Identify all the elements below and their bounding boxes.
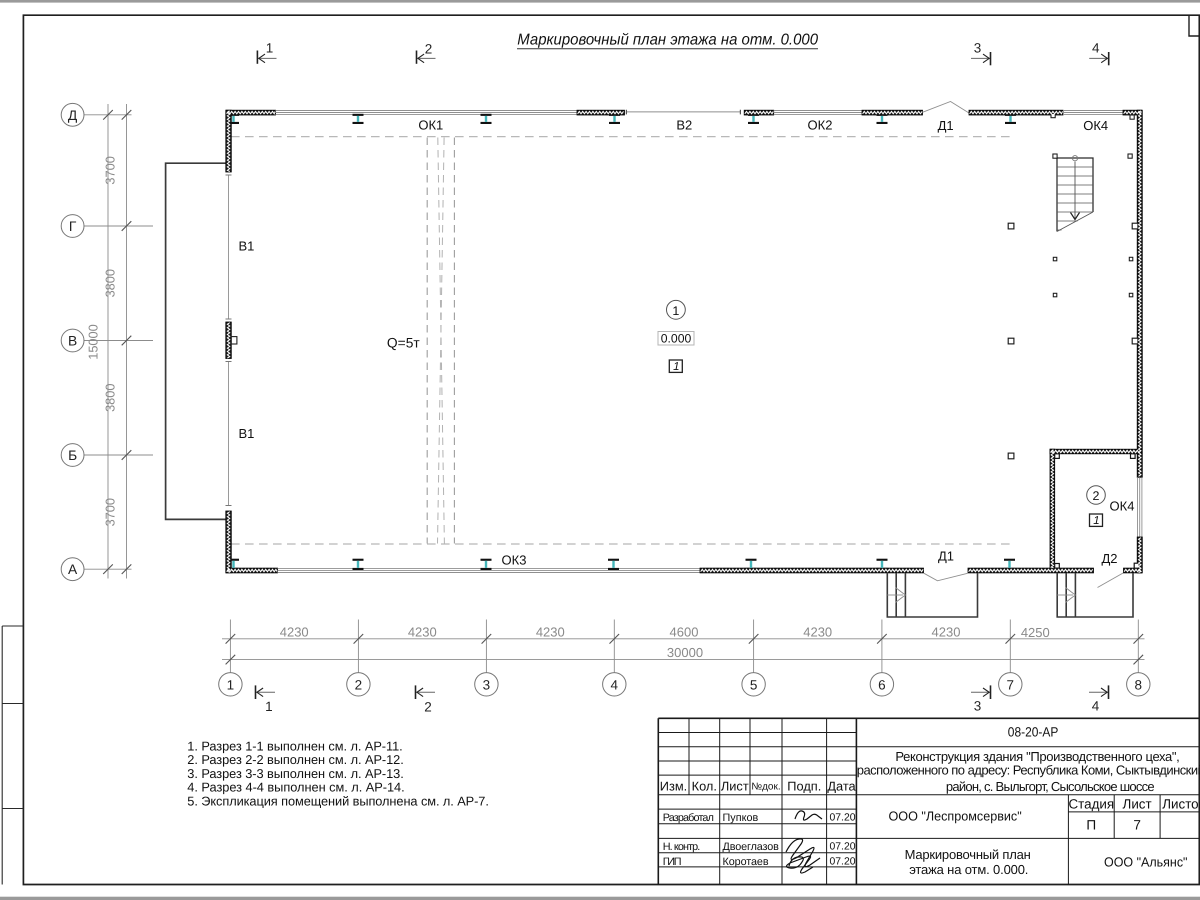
- svg-text:1: 1: [227, 677, 235, 692]
- svg-text:3: 3: [483, 677, 491, 692]
- svg-text:Маркировочный план этажа на от: Маркировочный план этажа на отм. 0.000: [517, 32, 818, 49]
- svg-text:Лист: Лист: [1123, 797, 1152, 812]
- svg-text:7: 7: [1133, 818, 1141, 833]
- svg-text:ОК2: ОК2: [808, 117, 833, 132]
- svg-text:Дата: Дата: [827, 778, 856, 793]
- svg-text:7: 7: [1007, 677, 1015, 692]
- svg-text:4230: 4230: [803, 624, 832, 639]
- svg-text:В: В: [68, 334, 77, 349]
- svg-text:Q=5т: Q=5т: [387, 336, 420, 351]
- svg-text:ОК3: ОК3: [502, 553, 527, 568]
- svg-text:2: 2: [425, 42, 433, 57]
- svg-text:2: 2: [355, 677, 363, 692]
- svg-text:5. Экспликация помещений выпол: 5. Экспликация помещений выполнена см. л…: [187, 793, 489, 808]
- svg-text:3: 3: [974, 41, 982, 56]
- svg-text:ООО "Леспромсервис": ООО "Леспромсервис": [889, 809, 1023, 824]
- svg-text:1: 1: [265, 699, 273, 714]
- svg-text:Лист: Лист: [721, 778, 749, 793]
- svg-text:3800: 3800: [103, 269, 118, 297]
- svg-text:ОК4: ОК4: [1110, 499, 1135, 514]
- svg-text:4: 4: [1092, 699, 1100, 714]
- svg-text:Стадия: Стадия: [1068, 797, 1114, 812]
- svg-text:№док.: №док.: [751, 781, 780, 792]
- svg-text:4230: 4230: [280, 624, 309, 639]
- svg-text:6: 6: [878, 677, 886, 692]
- svg-text:4: 4: [611, 677, 619, 692]
- svg-text:Д1: Д1: [938, 118, 954, 133]
- svg-text:4230: 4230: [536, 624, 565, 639]
- svg-text:Коротаев: Коротаев: [723, 856, 769, 868]
- svg-text:П: П: [1086, 818, 1096, 833]
- svg-text:1: 1: [1093, 515, 1099, 527]
- svg-text:Н. контр.: Н. контр.: [663, 841, 701, 853]
- svg-text:Двоеглазов: Двоеглазов: [723, 841, 780, 853]
- svg-text:Д1: Д1: [938, 549, 954, 564]
- svg-text:0.000: 0.000: [661, 331, 692, 345]
- svg-text:3: 3: [974, 699, 982, 714]
- svg-text:3700: 3700: [103, 156, 118, 184]
- svg-text:07.20: 07.20: [830, 813, 856, 824]
- svg-text:07.20: 07.20: [830, 842, 856, 853]
- svg-text:Разработал: Разработал: [663, 812, 714, 824]
- svg-text:Листов: Листов: [1162, 797, 1200, 812]
- svg-text:Маркировочный план: Маркировочный план: [905, 847, 1031, 862]
- svg-text:Д: Д: [68, 108, 78, 123]
- svg-text:Подп.: Подп.: [787, 778, 821, 793]
- svg-text:08-20-АР: 08-20-АР: [1008, 724, 1059, 739]
- svg-text:5: 5: [750, 677, 758, 692]
- svg-text:30000: 30000: [667, 645, 703, 660]
- svg-text:район, с. Выльгорт, Сысольское: район, с. Выльгорт, Сысольское шоссе: [946, 779, 1155, 794]
- svg-text:В1: В1: [239, 426, 255, 441]
- svg-text:ОК1: ОК1: [418, 117, 443, 132]
- svg-text:4: 4: [1092, 41, 1100, 56]
- svg-text:Б: Б: [68, 448, 77, 463]
- svg-text:расположенного по адресу: Респ: расположенного по адресу: Республика Ком…: [857, 763, 1200, 778]
- svg-text:А: А: [68, 562, 78, 577]
- svg-text:4230: 4230: [408, 624, 437, 639]
- svg-text:1: 1: [672, 304, 679, 318]
- svg-text:В2: В2: [676, 117, 692, 132]
- svg-text:2: 2: [424, 700, 432, 715]
- svg-text:1: 1: [673, 361, 679, 373]
- svg-text:4230: 4230: [932, 624, 961, 639]
- svg-text:Изм.: Изм.: [660, 778, 687, 793]
- svg-text:2: 2: [1093, 489, 1100, 503]
- svg-text:ГИП: ГИП: [663, 856, 682, 868]
- svg-text:3800: 3800: [103, 383, 118, 411]
- svg-text:ООО "Альянс": ООО "Альянс": [1104, 855, 1188, 870]
- svg-text:15000: 15000: [86, 324, 101, 360]
- svg-text:Пупков: Пупков: [723, 812, 759, 824]
- svg-text:3700: 3700: [103, 498, 118, 526]
- svg-text:Кол.: Кол.: [692, 778, 717, 793]
- svg-text:4250: 4250: [1021, 625, 1050, 640]
- svg-text:4. Разрез 4-4 выполнен см. л.: 4. Разрез 4-4 выполнен см. л. АР-14.: [187, 780, 404, 795]
- svg-text:В1: В1: [239, 239, 255, 254]
- svg-text:1. Разрез 1-1 выполнен см. л.: 1. Разрез 1-1 выполнен см. л. АР-11.: [187, 738, 402, 753]
- svg-text:Д2: Д2: [1101, 551, 1117, 566]
- svg-text:07.20: 07.20: [830, 857, 856, 868]
- svg-text:8: 8: [1135, 677, 1143, 692]
- svg-text:4600: 4600: [670, 624, 699, 639]
- svg-text:1: 1: [266, 41, 274, 56]
- svg-text:ОК4: ОК4: [1083, 118, 1108, 133]
- svg-text:Г: Г: [69, 219, 77, 234]
- svg-text:этажа на отм. 0.000.: этажа на отм. 0.000.: [909, 862, 1028, 877]
